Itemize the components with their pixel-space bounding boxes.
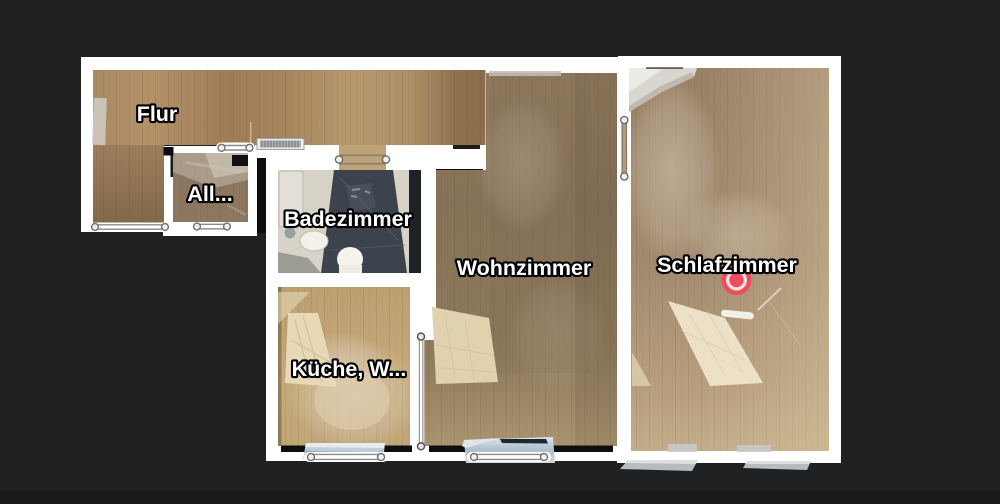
- svg-text:Küche, W...: Küche, W...: [292, 357, 407, 381]
- svg-text:Schlafzimmer: Schlafzimmer: [657, 253, 797, 277]
- svg-text:Flur: Flur: [137, 102, 178, 126]
- svg-text:All...: All...: [187, 182, 232, 206]
- svg-text:Wohnzimmer: Wohnzimmer: [457, 256, 592, 280]
- svg-text:Badezimmer: Badezimmer: [284, 207, 412, 231]
